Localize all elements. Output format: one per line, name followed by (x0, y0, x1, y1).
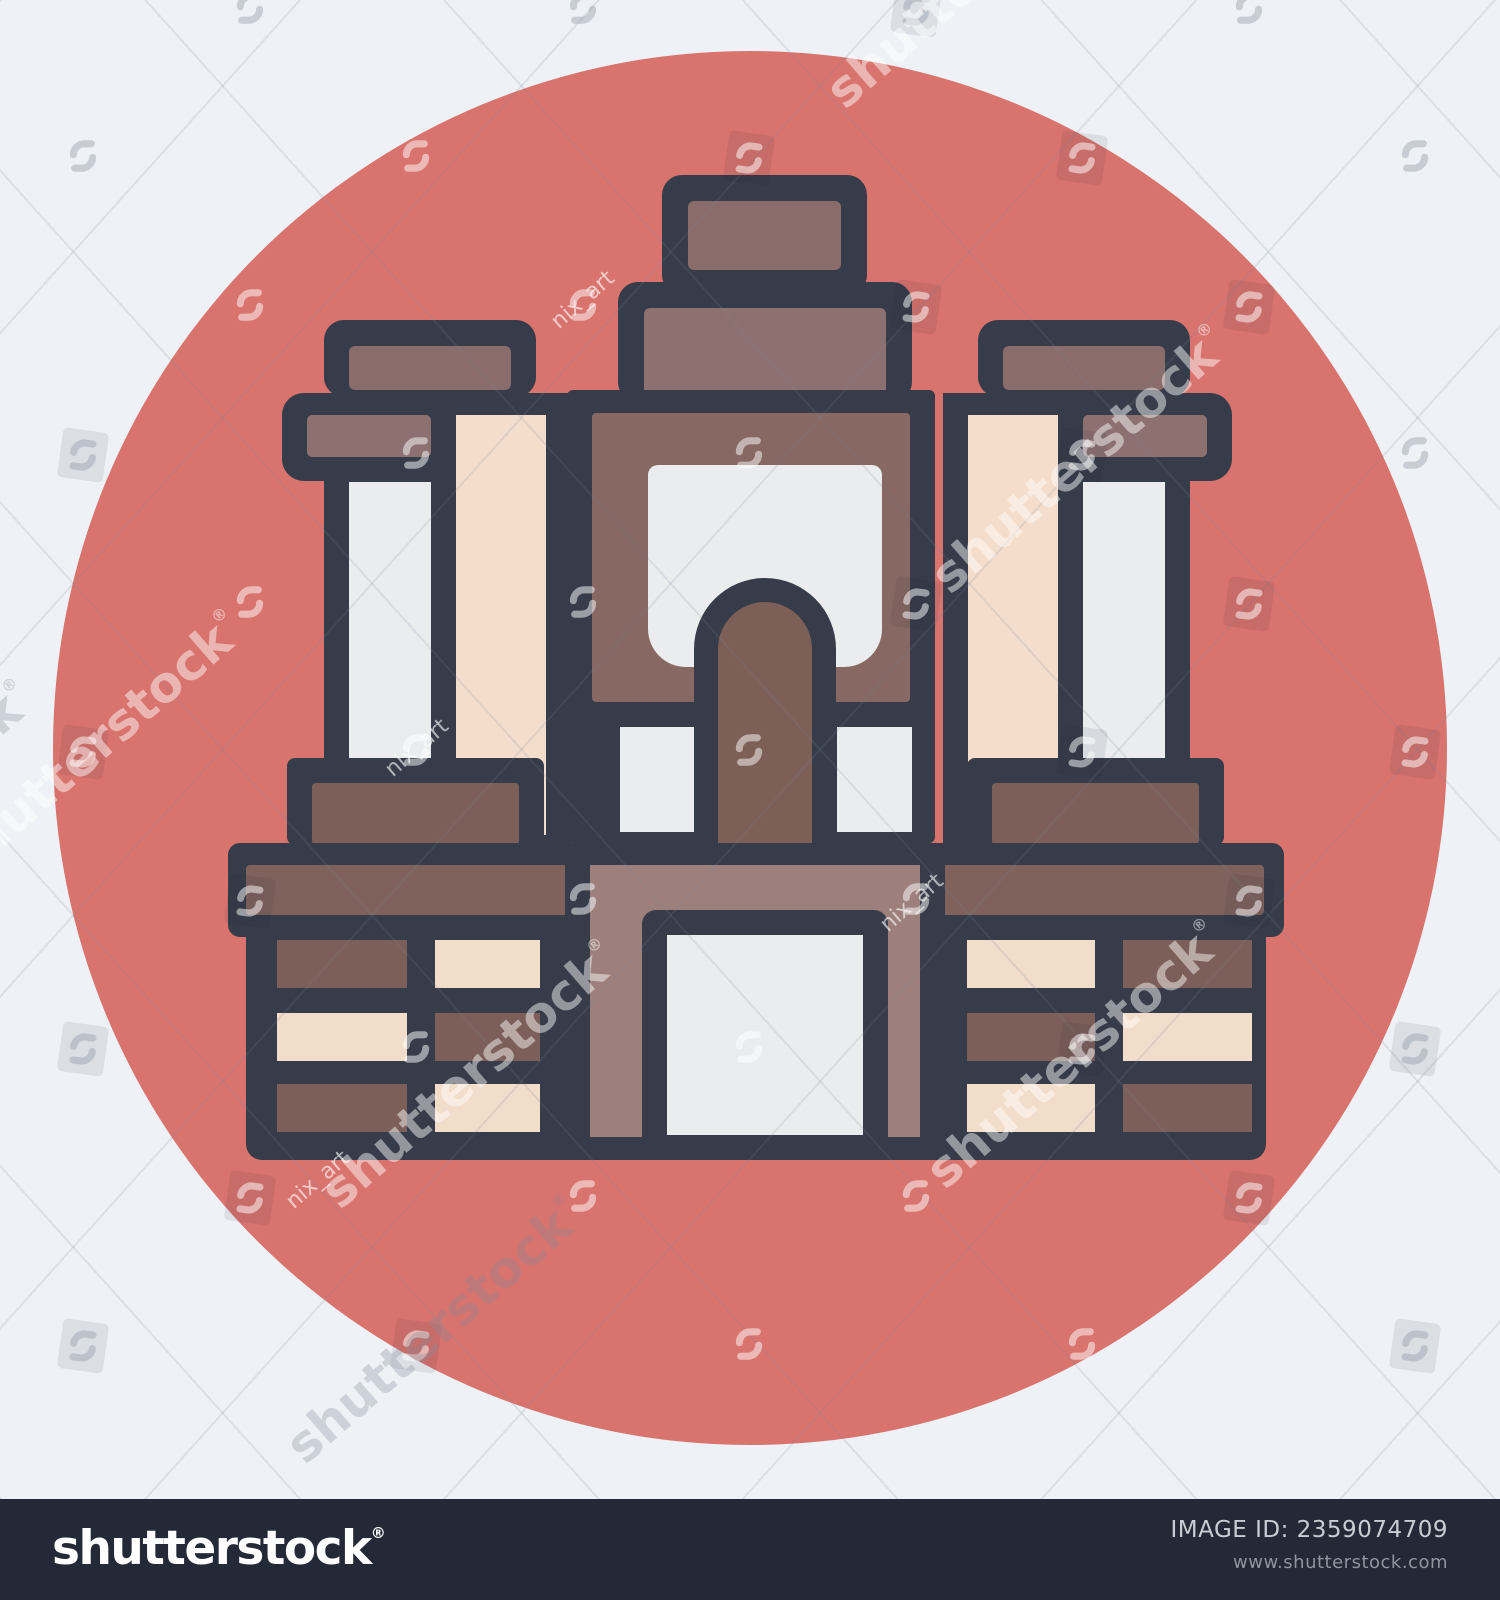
shutterstock-square-mark-icon (1392, 1024, 1438, 1074)
left-window (620, 727, 695, 832)
brick (1123, 1084, 1252, 1132)
central-pillar (718, 602, 812, 843)
brick (1123, 940, 1252, 988)
shutterstock-square-mark-icon (893, 0, 939, 35)
shutterstock-url: www.shutterstock.com (1170, 1552, 1448, 1573)
shutterstock-mark-icon (1397, 138, 1433, 178)
brick (277, 940, 407, 988)
door (667, 935, 863, 1135)
shutterstock-mark-icon (65, 138, 101, 178)
shutterstock-square-mark-icon (60, 430, 106, 480)
stock-image-preview-page: shutterstock® shutterstock® shutterstock… (0, 0, 1500, 1600)
left-column (349, 482, 431, 758)
shutterstock-mark-icon (1231, 0, 1267, 30)
left-tower-cap (349, 346, 511, 390)
image-id: IMAGE ID: 2359074709 (1170, 1517, 1448, 1543)
brick (967, 940, 1095, 988)
shutterstock-mark-icon (565, 0, 601, 30)
right-architrave (1083, 415, 1207, 457)
watermarked-image: shutterstock® shutterstock® shutterstock… (0, 0, 1500, 1499)
central-tower-cap1 (688, 201, 841, 270)
left-architrave (307, 415, 431, 457)
registered-mark: ® (0, 673, 22, 698)
shutterstock-square-mark-icon (60, 1321, 106, 1371)
registered-mark: ® (371, 1524, 386, 1542)
door-bay-left-separator (565, 843, 590, 1137)
right-window (837, 727, 912, 832)
shutterstock-logo-text: shutterstock (52, 1521, 371, 1576)
brick (435, 940, 540, 988)
brick (277, 1084, 407, 1132)
brick (277, 1013, 407, 1061)
brick (1123, 1013, 1252, 1061)
door-bay-right-separator (920, 843, 945, 1137)
right-pedestal (992, 783, 1199, 845)
footer-info: IMAGE ID: 2359074709 www.shutterstock.co… (1170, 1517, 1448, 1573)
brick (967, 1084, 1095, 1132)
footer-bar: shutterstock® IMAGE ID: 2359074709 www.s… (0, 1499, 1500, 1600)
shutterstock-square-mark-icon (60, 1024, 106, 1074)
brick (435, 1084, 540, 1132)
shutterstock-logo: shutterstock® (52, 1521, 386, 1576)
shutterstock-mark-icon (232, 0, 268, 30)
left-pedestal (312, 783, 519, 845)
shutterstock-watermark-text: shutterstock® (0, 670, 45, 959)
shutterstock-square-mark-icon (1392, 1321, 1438, 1371)
central-tower-cap2 (644, 308, 886, 402)
right-tower-cap (1003, 346, 1165, 390)
shutterstock-mark-icon (1397, 435, 1433, 475)
brick (967, 1013, 1095, 1061)
brick (435, 1013, 540, 1061)
right-column (1083, 482, 1165, 758)
watermark-brand: shutterstock (0, 681, 33, 960)
